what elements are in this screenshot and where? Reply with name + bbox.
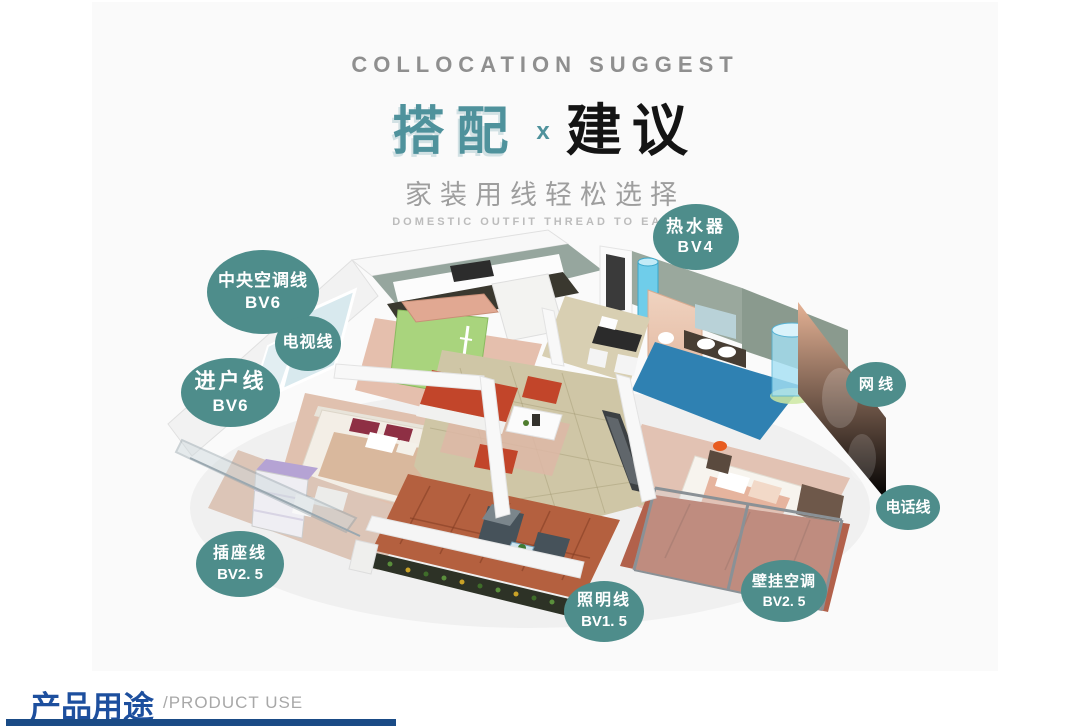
footer-section-subtitle: /PRODUCT USE [163,693,303,713]
title-right: 建议 [566,86,698,167]
callout-water-heater: 热水器 BV4 [653,204,739,270]
callout-socket-line: 插座线 BV2. 5 [196,531,284,597]
callout-label: 插座线 [213,544,267,565]
callout-entry-line: 进户线 BV6 [181,358,280,427]
callout-wall-ac: 壁挂空调 BV2. 5 [741,560,827,622]
callout-spec: BV2. 5 [217,565,263,585]
callout-label: 中央空调线 [218,270,308,292]
footer-accent-bar [6,719,396,726]
header: COLLOCATION SUGGEST 搭配 x 建议 家装用线轻松选择 DOM… [92,52,998,228]
callout-phone-line: 电话线 [876,485,940,530]
callout-spec: BV6 [212,395,248,417]
callout-spec: BV6 [245,292,281,314]
page: COLLOCATION SUGGEST 搭配 x 建议 家装用线轻松选择 DOM… [0,0,1080,726]
callout-network-line: 网 线 [846,362,906,407]
callout-label: 壁挂空调 [752,572,816,592]
callout-spec: BV2. 5 [763,592,806,610]
callout-tv-line: 电视线 [275,316,341,371]
title-left: 搭配 [392,89,520,164]
callout-label: 照明线 [577,591,631,612]
header-title: 搭配 x 建议 [92,86,998,167]
callout-spec: BV4 [677,238,714,259]
callout-label: 电视线 [282,333,333,354]
callout-label: 热水器 [666,216,726,238]
header-eyebrow: COLLOCATION SUGGEST [92,52,998,78]
callout-label: 进户线 [195,368,267,395]
callout-label: 电话线 [885,498,930,518]
header-subtitle: 家装用线轻松选择 [92,173,998,212]
title-x: x [536,118,549,146]
callout-label: 网 线 [859,375,893,395]
callout-lighting-line: 照明线 BV1. 5 [564,581,644,642]
callout-spec: BV1. 5 [581,612,627,632]
